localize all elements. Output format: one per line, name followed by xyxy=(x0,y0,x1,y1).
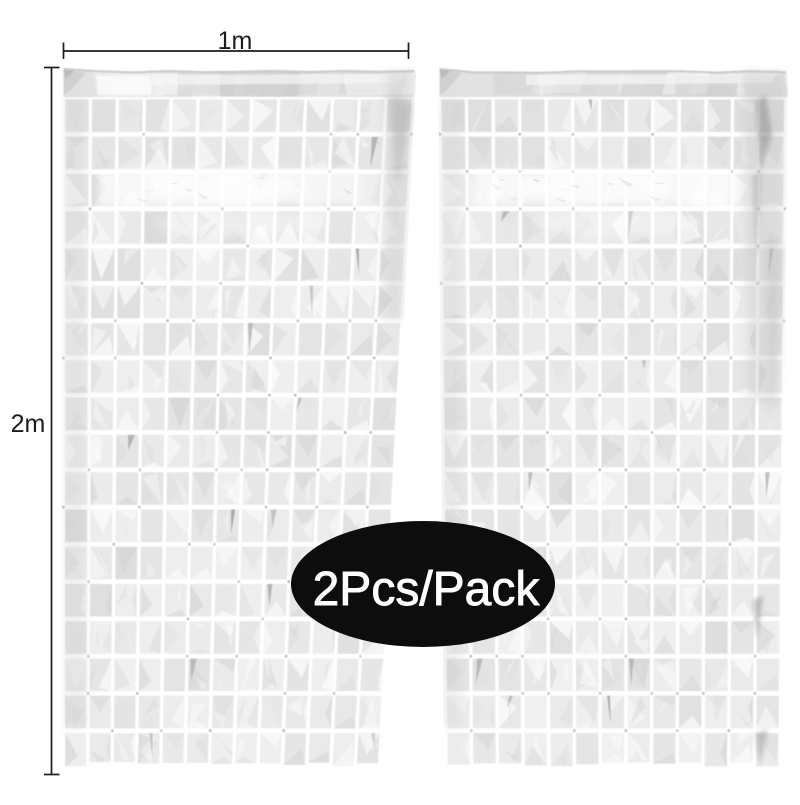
svg-text:2Pcs/Pack: 2Pcs/Pack xyxy=(313,563,541,616)
svg-text:1m: 1m xyxy=(218,27,253,55)
svg-text:2m: 2m xyxy=(11,410,46,438)
